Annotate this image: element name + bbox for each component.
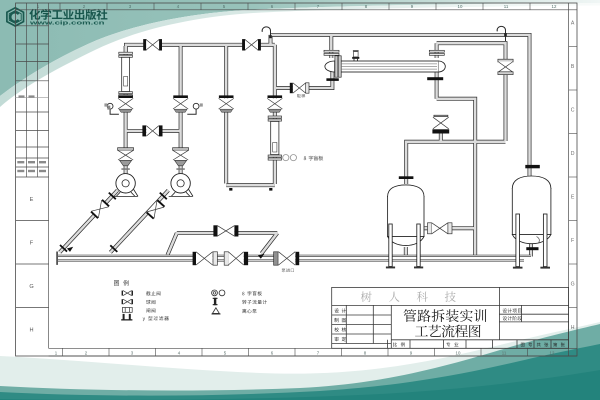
svg-text:F: F — [571, 238, 574, 244]
svg-text:11: 11 — [504, 4, 509, 9]
svg-text:C: C — [571, 108, 575, 114]
svg-text:D: D — [571, 151, 575, 157]
svg-text:G: G — [571, 282, 575, 288]
svg-text:H: H — [571, 325, 575, 331]
svg-text:H: H — [29, 328, 33, 334]
svg-text:A: A — [571, 21, 575, 27]
svg-text:12: 12 — [550, 350, 555, 355]
svg-text:10: 10 — [458, 4, 463, 9]
svg-text:12: 12 — [552, 4, 557, 9]
svg-text:G: G — [29, 284, 33, 290]
svg-text:E: E — [571, 195, 575, 201]
svg-text:E: E — [30, 197, 34, 203]
svg-text:B: B — [571, 64, 575, 70]
svg-text:F: F — [30, 241, 34, 247]
svg-text:10: 10 — [456, 350, 461, 355]
svg-text:11: 11 — [502, 350, 507, 355]
